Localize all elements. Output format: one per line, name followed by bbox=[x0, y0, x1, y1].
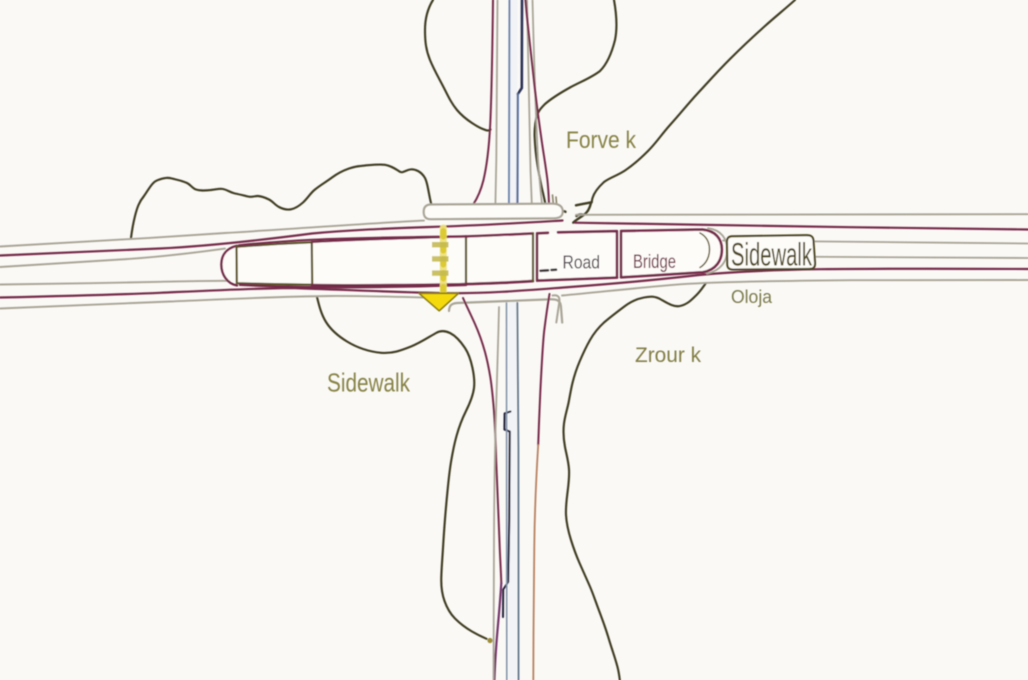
svg-text:Road: Road bbox=[563, 253, 601, 273]
svg-text:Zrour k: Zrour k bbox=[635, 344, 701, 367]
svg-text:Bridge: Bridge bbox=[633, 252, 676, 273]
svg-text:Oloja: Oloja bbox=[731, 286, 773, 307]
svg-text:Sidewalk: Sidewalk bbox=[327, 368, 411, 398]
svg-text:Sidewalk: Sidewalk bbox=[731, 237, 813, 273]
svg-text:Forve k: Forve k bbox=[566, 127, 637, 154]
